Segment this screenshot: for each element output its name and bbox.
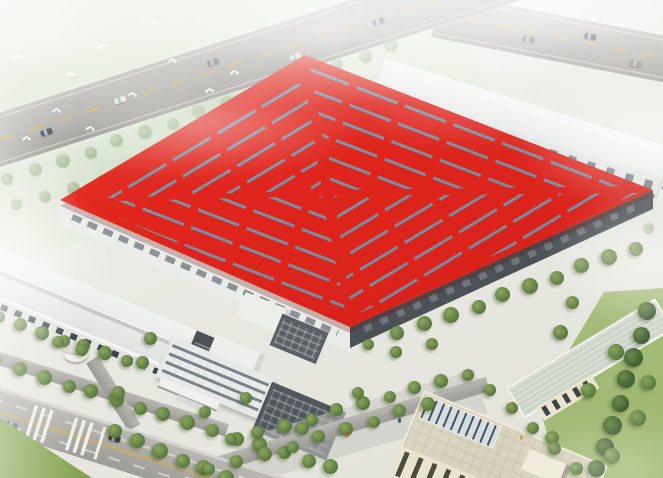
tree — [384, 38, 398, 52]
tree — [574, 258, 589, 273]
tree — [287, 441, 299, 453]
tree — [390, 326, 404, 340]
car — [584, 32, 597, 40]
car — [629, 60, 642, 68]
tree — [63, 380, 76, 393]
tree — [278, 419, 292, 433]
tree — [251, 426, 264, 439]
tree — [98, 346, 112, 360]
tree — [35, 326, 49, 340]
tree — [258, 447, 272, 461]
tree — [296, 422, 309, 435]
tree — [601, 249, 617, 265]
tree — [352, 387, 364, 399]
tree — [417, 316, 432, 331]
pedestrian — [345, 432, 348, 437]
tree — [608, 344, 624, 360]
tree — [1, 173, 13, 185]
tree — [363, 339, 374, 350]
tree — [550, 271, 564, 285]
tree — [37, 370, 52, 385]
tree — [368, 416, 380, 428]
tree — [29, 163, 42, 176]
tree — [203, 463, 215, 475]
tree — [167, 118, 179, 130]
campus-aerial-rendering — [0, 0, 663, 478]
tree — [156, 407, 170, 421]
pedestrian — [398, 418, 401, 423]
tree — [581, 383, 596, 398]
car — [40, 127, 53, 136]
tree — [603, 416, 622, 435]
tree — [390, 346, 402, 358]
tree — [426, 338, 438, 350]
tree — [548, 442, 561, 455]
tree — [553, 325, 568, 340]
tree — [76, 344, 88, 356]
tree — [624, 348, 643, 367]
tree — [108, 424, 122, 438]
tree — [566, 296, 579, 309]
tree — [225, 433, 237, 445]
tree — [136, 356, 149, 369]
car — [206, 57, 219, 66]
car — [522, 35, 535, 43]
tree — [312, 430, 325, 443]
tree — [13, 362, 27, 376]
tree — [522, 278, 538, 294]
tree — [629, 242, 643, 256]
tree — [359, 50, 372, 63]
tree — [144, 332, 157, 345]
tree — [330, 403, 343, 416]
tree — [472, 300, 486, 314]
tree — [617, 370, 635, 388]
tree — [638, 302, 656, 320]
tree — [604, 448, 620, 464]
tree — [484, 384, 496, 396]
tree — [443, 307, 459, 323]
tree — [112, 386, 125, 399]
tree — [630, 410, 646, 426]
tree — [570, 462, 583, 475]
tree — [462, 369, 474, 381]
tree — [206, 424, 219, 437]
annex-windows — [274, 318, 325, 359]
car — [114, 95, 127, 104]
tree — [180, 415, 195, 430]
tree — [199, 406, 211, 418]
tree — [121, 355, 133, 367]
tree — [421, 397, 435, 411]
tree — [408, 381, 421, 394]
pedestrian — [520, 435, 523, 440]
tree — [495, 287, 510, 302]
tree — [39, 191, 51, 203]
tree — [527, 422, 539, 434]
tree — [14, 318, 27, 331]
tree — [240, 392, 252, 404]
tree — [643, 223, 654, 234]
tree — [641, 375, 656, 390]
tree — [506, 402, 518, 414]
tree — [52, 336, 64, 348]
